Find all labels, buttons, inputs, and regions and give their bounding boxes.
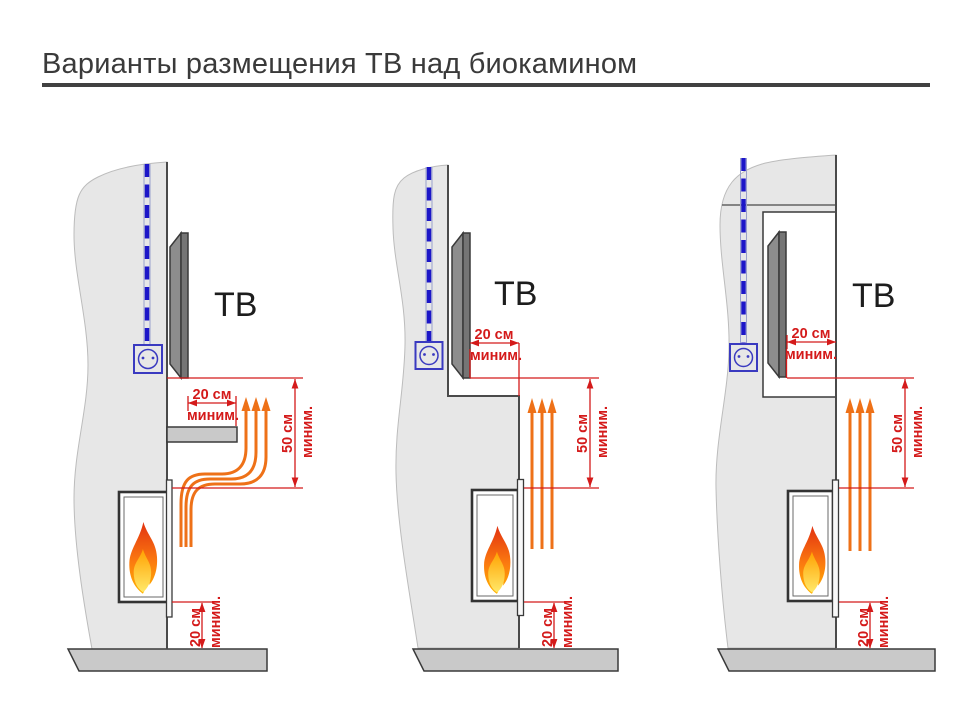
- svg-text:20 см: 20 см: [475, 327, 514, 343]
- tv-back-body: [170, 233, 181, 378]
- diagram-canvas: ТВ 20 см: [0, 0, 970, 728]
- tv-side-view: [768, 232, 786, 377]
- dimension-fireplace-to-floor: 20 см миним.: [524, 596, 576, 649]
- floor-plinth: [413, 649, 618, 671]
- svg-text:миним.: миним.: [187, 408, 239, 424]
- fireplace: [472, 480, 524, 616]
- fireplace-glass-front: [167, 480, 173, 617]
- tv-panel: [181, 233, 188, 378]
- floor-plinth: [68, 649, 267, 671]
- svg-text:миним.: миним.: [470, 348, 522, 364]
- airflow-arrowhead: [856, 398, 865, 413]
- power-socket-icon: [134, 345, 162, 373]
- fireplace-glass-front: [518, 480, 524, 616]
- airflow-arrowhead: [528, 398, 537, 413]
- airflow-arrowhead: [548, 398, 557, 413]
- airflow-arrowhead: [846, 398, 855, 413]
- svg-text:миним.: миним.: [208, 596, 224, 648]
- power-socket-icon: [730, 344, 757, 371]
- airflow-arrows: [528, 398, 557, 549]
- protective-shelf: [167, 427, 237, 442]
- svg-text:миним.: миним.: [300, 406, 316, 458]
- svg-text:миним.: миним.: [560, 596, 576, 648]
- tv-side-view: [170, 233, 188, 378]
- svg-text:миним.: миним.: [910, 406, 926, 458]
- svg-text:50 см: 50 см: [890, 414, 906, 453]
- tv-label: ТВ: [852, 277, 895, 315]
- airflow-arrows: [846, 398, 875, 551]
- diagram-variant-1: ТВ 20 см: [68, 162, 316, 671]
- airflow-arrowhead: [252, 397, 261, 411]
- slide: Варианты размещения ТВ над биокамином: [0, 0, 970, 728]
- airflow-arrowhead: [866, 398, 875, 413]
- svg-text:20 см: 20 см: [193, 387, 232, 403]
- dimension-recess-depth: 20 см миним.: [470, 327, 522, 396]
- fireplace: [788, 480, 839, 617]
- dimension-shelf-depth: 20 см миним.: [187, 387, 239, 426]
- tv-panel: [463, 233, 470, 378]
- svg-text:20 см: 20 см: [540, 608, 556, 647]
- svg-text:20 см: 20 см: [792, 326, 831, 342]
- diagram-variant-3: ТВ 20 см ми: [716, 155, 935, 671]
- airflow-arrowhead: [262, 397, 271, 411]
- tv-label: ТВ: [214, 286, 257, 324]
- tv-label: ТВ: [494, 275, 537, 313]
- airflow-arrowhead: [242, 397, 251, 411]
- fireplace-glass-front: [833, 480, 839, 617]
- fireplace: [119, 480, 172, 617]
- svg-text:миним.: миним.: [595, 406, 611, 458]
- tv-back-body: [768, 232, 779, 377]
- dimension-fireplace-to-floor: 20 см миним.: [172, 596, 224, 649]
- floor-plinth: [718, 649, 935, 671]
- diagram-variant-2: ТВ 20 см ми: [393, 165, 618, 671]
- svg-text:миним.: миним.: [876, 596, 892, 648]
- svg-text:миним.: миним.: [785, 347, 837, 363]
- airflow-arrowhead: [538, 398, 547, 413]
- svg-text:20 см: 20 см: [856, 608, 872, 647]
- tv-back-body: [452, 233, 463, 378]
- svg-text:20 см: 20 см: [188, 608, 204, 647]
- power-socket-icon: [416, 342, 443, 369]
- dimension-fireplace-to-floor: 20 см миним.: [839, 596, 892, 649]
- tv-side-view: [452, 233, 470, 378]
- svg-text:50 см: 50 см: [280, 414, 296, 453]
- svg-text:50 см: 50 см: [575, 414, 591, 453]
